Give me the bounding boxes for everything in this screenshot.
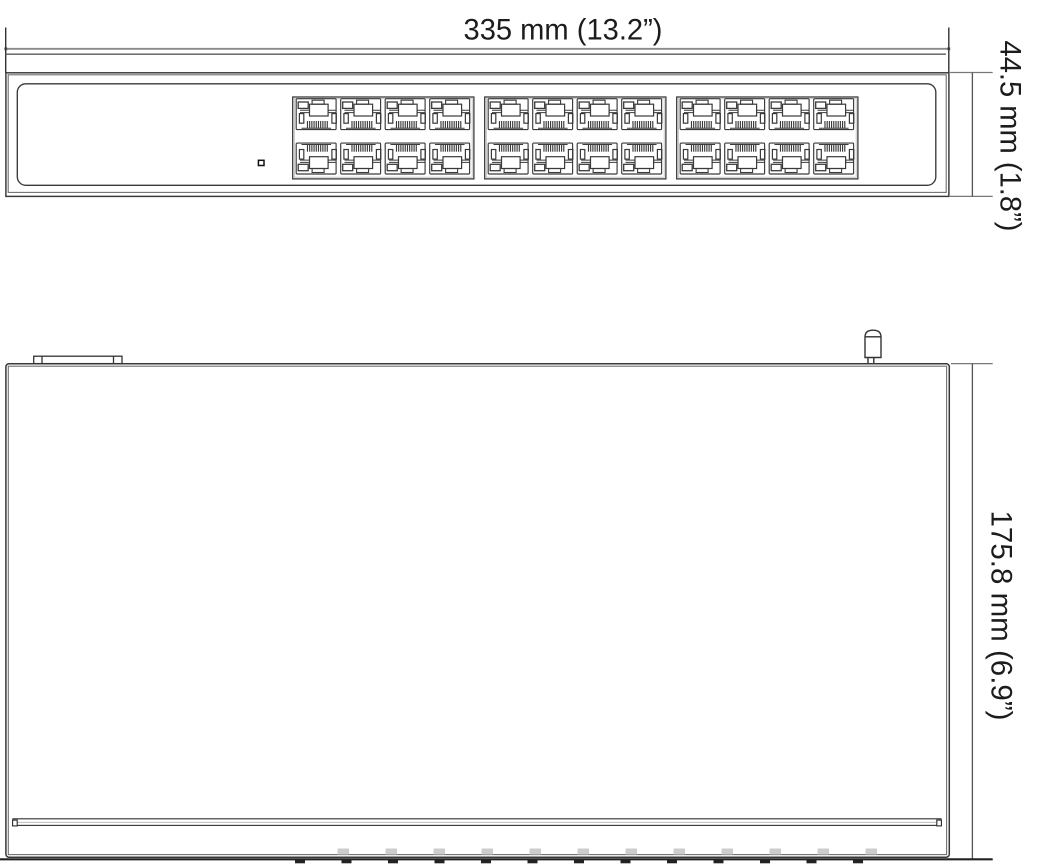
- svg-text:335 mm (13.2”): 335 mm (13.2”): [464, 14, 663, 47]
- svg-text:44.5 mm (1.8”): 44.5 mm (1.8”): [994, 41, 1027, 232]
- svg-text:175.8 mm (6.9”): 175.8 mm (6.9”): [985, 511, 1018, 721]
